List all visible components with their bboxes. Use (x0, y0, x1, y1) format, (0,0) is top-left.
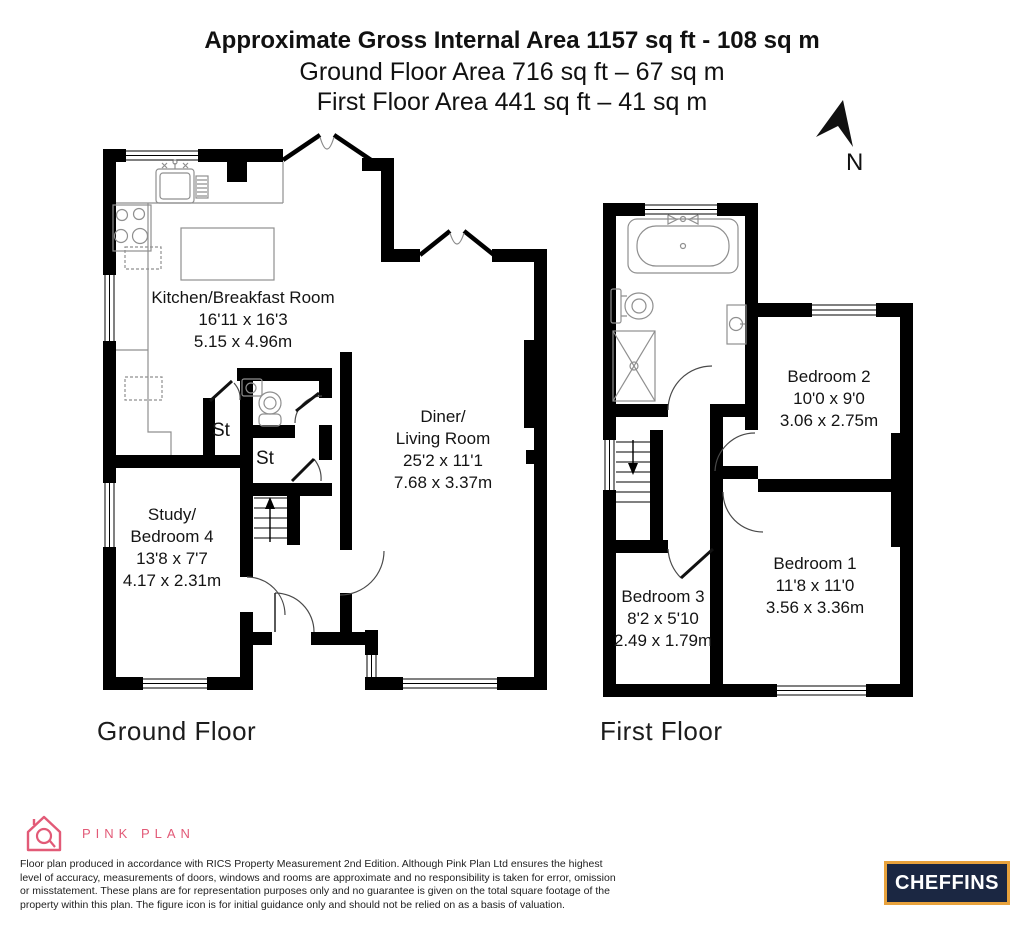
disclaimer-line: property within this plan. The figure ic… (20, 899, 616, 913)
north-arrow-icon: N (816, 100, 863, 176)
bathtub-icon (628, 215, 738, 273)
kitchen-label: Kitchen/Breakfast Room 16'11 x 16'3 5.15… (151, 287, 334, 353)
bathroom-sink-icon (727, 305, 746, 344)
room-dims-imperial: 10'0 x 9'0 (780, 388, 878, 410)
room-name: Diner/ (394, 406, 492, 428)
first-stairs (616, 440, 650, 502)
cheffins-brand-text: CHEFFINS (895, 872, 999, 895)
first-floor-caption: First Floor (600, 716, 723, 747)
store1-label: St (212, 420, 230, 442)
diner-label: Diner/ Living Room 25'2 x 11'1 7.68 x 3.… (394, 406, 492, 494)
bedroom2-label: Bedroom 2 10'0 x 9'0 3.06 x 2.75m (780, 366, 878, 432)
bedroom3-label: Bedroom 3 8'2 x 5'10 2.49 x 1.79m (614, 586, 712, 652)
cheffins-logo: CHEFFINS (884, 861, 1010, 905)
room-name: Study/ (123, 504, 221, 526)
room-dims-metric: 5.15 x 4.96m (151, 331, 334, 353)
room-dims-metric: 3.56 x 3.36m (766, 597, 864, 619)
room-dims-metric: 3.06 x 2.75m (780, 410, 878, 432)
floorplan-page: Approximate Gross Internal Area 1157 sq … (0, 0, 1024, 928)
room-dims-imperial: 11'8 x 11'0 (766, 575, 864, 597)
room-dims-imperial: 25'2 x 11'1 (394, 450, 492, 472)
room-name: Living Room (394, 428, 492, 450)
ground-stairs (254, 497, 287, 542)
stairs-down-arrow-icon (628, 463, 638, 475)
appliance-dashed-icon (125, 377, 162, 400)
bathroom-toilet-icon (611, 289, 653, 323)
room-dims-metric: 7.68 x 3.37m (394, 472, 492, 494)
room-name: Bedroom 4 (123, 526, 221, 548)
pinkplan-brand-text: PINK PLAN (82, 826, 195, 841)
room-name: Kitchen/Breakfast Room (151, 287, 334, 309)
room-name: Bedroom 1 (766, 553, 864, 575)
room-dims-metric: 2.49 x 1.79m (614, 630, 712, 652)
kitchen-island (181, 228, 274, 280)
appliance-dashed-icon (125, 247, 161, 269)
disclaimer-text: Floor plan produced in accordance with R… (20, 858, 616, 912)
disclaimer-line: level of accuracy, measurements of doors… (20, 872, 616, 886)
north-label: N (846, 149, 863, 176)
room-name: Bedroom 3 (614, 586, 712, 608)
shower-icon (613, 331, 655, 401)
kitchen-sink-icon (156, 160, 194, 203)
pinkplan-logo: PINK PLAN (24, 812, 195, 854)
room-dims-metric: 4.17 x 2.31m (123, 570, 221, 592)
store2-label: St (256, 448, 274, 470)
counter-edge (116, 162, 283, 203)
room-dims-imperial: 16'11 x 16'3 (151, 309, 334, 331)
bathroom-fixtures (611, 215, 746, 401)
stove-icon (113, 205, 151, 251)
drainer-icon (196, 176, 208, 198)
disclaimer-line: or misstatement. These plans are for rep… (20, 885, 616, 899)
pinkplan-house-icon (24, 812, 64, 854)
room-dims-imperial: 13'8 x 7'7 (123, 548, 221, 570)
ground-floor-caption: Ground Floor (97, 716, 256, 747)
bedroom1-label: Bedroom 1 11'8 x 11'0 3.56 x 3.36m (766, 553, 864, 619)
room-name: Bedroom 2 (780, 366, 878, 388)
room-dims-imperial: 8'2 x 5'10 (614, 608, 712, 630)
study-label: Study/ Bedroom 4 13'8 x 7'7 4.17 x 2.31m (123, 504, 221, 592)
floorplan-drawing: N (0, 0, 1024, 928)
wc-toilet-icon (259, 392, 281, 426)
disclaimer-line: Floor plan produced in accordance with R… (20, 858, 616, 872)
stairs-up-arrow-icon (265, 497, 275, 509)
